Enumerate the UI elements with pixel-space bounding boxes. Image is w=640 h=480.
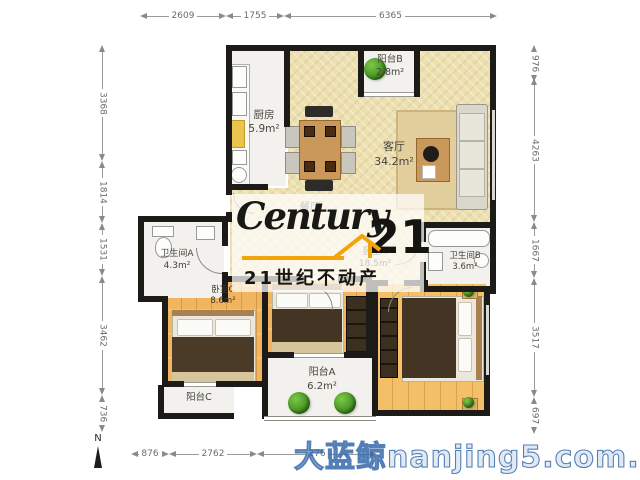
window [364,92,414,97]
dim-label: 976 [530,52,539,75]
room-label-bath-b: 卫生间B3.6m² [440,251,490,274]
dim-top-1: 2609 [140,10,226,22]
logo-gold-bar [242,256,344,260]
plant-icon [463,397,474,408]
window [184,382,216,387]
dim-label: 1667 [530,236,539,265]
dim-bottom-1: 876 [131,448,169,460]
dim-label: 2609 [169,12,198,21]
dim-label: 1755 [241,12,270,21]
dim-label: 2762 [199,450,228,459]
north-compass: N [88,434,108,468]
dim-right-4: 3517 [528,278,540,397]
logo-chinese-text: 21世纪不动产 [244,264,380,290]
dim-label: 4263 [530,136,539,165]
wall [226,184,268,190]
window [492,110,495,200]
wall [262,276,268,387]
logo-roof-icon [334,228,406,260]
dining-chair [341,152,356,174]
basin-a [196,226,215,240]
room-label-balcony-a: 阳台A6.2m² [292,366,352,393]
toilet-tank-a [152,226,174,237]
dining-chair [285,152,300,174]
dim-top-3: 6365 [284,10,497,22]
wall [162,296,168,387]
floor-plan-canvas: 2609 1755 6365 876 2762 276 3368 1814 15… [0,0,640,480]
dim-left-4: 3462 [96,276,108,395]
bathtub-b [428,230,490,247]
sofa-cushion [459,169,485,197]
dim-left-3: 1531 [96,223,108,276]
dining-bench-top [305,106,333,117]
bed-c-pillow [215,319,251,336]
bed-a-headboard [476,296,482,380]
room-label-balcony-b: 阳台B2.8m² [362,54,418,80]
wall [158,413,234,419]
wall [268,352,294,358]
plant-icon [334,392,356,414]
dim-label: 1531 [98,235,107,264]
wall [344,352,372,358]
bed-b-pillow [276,293,308,308]
balcony-rail [264,416,376,421]
wardrobe-b [346,296,368,356]
dim-label: 3517 [530,323,539,352]
wall [226,45,232,191]
wall [138,216,232,222]
dim-right-1: 976 [528,45,540,78]
bed-b-duvet [272,309,342,342]
dim-left-1: 3368 [96,45,108,161]
sofa-cushion [459,141,485,169]
dim-left-5: 736 [96,395,108,420]
dim-right-5: 697 [528,397,540,420]
wall [376,410,490,416]
dim-label: 6365 [376,12,405,21]
wall [138,220,144,302]
dim-label: 876 [138,450,161,459]
room-label-balcony-c: 阳台C [170,392,228,405]
dim-label: 697 [530,404,539,427]
dim-top-2: 1755 [226,10,284,22]
dining-chair [341,126,356,148]
bed-a-pillow [458,338,472,372]
kitchen-stove [232,150,247,165]
place-mat [325,161,336,172]
place-mat [304,126,315,137]
place-mat [325,126,336,137]
dim-left-2: 1814 [96,161,108,223]
kitchen-boiler [231,167,247,183]
room-label-bath-a: 卫生间A4.3m² [146,248,208,272]
dim-label: 1814 [98,178,107,207]
wall [222,216,228,246]
dim-right-3: 1667 [528,222,540,278]
north-label: N [88,434,108,444]
wall [420,286,496,292]
dim-right-2: 4263 [528,78,540,222]
dim-bottom-2: 2762 [169,448,257,460]
wall [158,385,164,419]
window [486,305,489,375]
sofa-cushion [459,113,485,141]
site-watermark: 大蓝鲸nanjing5.com.cn [294,432,640,476]
wall [216,381,268,387]
dim-label: 736 [98,402,107,425]
dim-label: 3368 [98,89,107,118]
place-mat [304,161,315,172]
dim-label: 3462 [98,321,107,350]
wall [262,387,268,419]
kitchen-cabinet [232,66,247,88]
bed-c-headboard [172,310,254,316]
bed-c-pillow [177,319,213,336]
bed-c-duvet [172,337,254,372]
window [294,353,344,358]
century21-logo: Century 21 21世纪不动产 [232,194,424,292]
room-label-kitchen: 厨房5.9m² [238,108,290,136]
bed-a-pillow [458,302,472,336]
wall [372,280,378,416]
dining-bench-bottom [305,180,333,191]
room-label-living: 客厅34.2m² [358,140,430,170]
north-arrow-icon [94,446,102,468]
plant-icon [288,392,310,414]
